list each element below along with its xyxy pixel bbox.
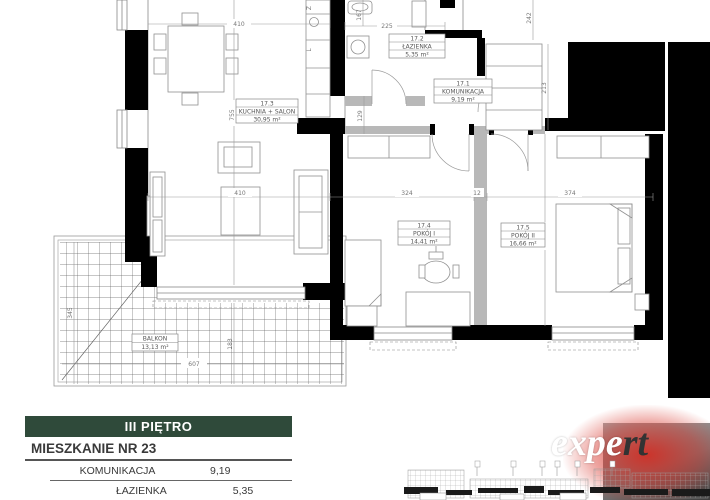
room2-wardrobe [557,136,649,158]
room-label-bathroom: 17.2 ŁAZIENKA 5,35 m² [389,34,445,59]
svg-text:POKÓJ I: POKÓJ I [413,231,435,238]
dim-room1-width: 324 [401,190,413,197]
room-label-corridor: 17.1 KOMUNIKACJA 9,19 m² [434,79,492,104]
kitchen-counter [306,0,330,117]
apartment-title: MIESZKANIE NR 23 [25,437,292,461]
svg-text:17.4: 17.4 [417,223,431,230]
dim-salon-width-mid: 410 [234,190,246,197]
legend-row: ŁAZIENKA 5,35 [50,480,292,500]
svg-text:POKÓJ II: POKÓJ II [511,233,535,240]
nightstand [635,294,649,310]
legend-row: KOMUNIKACJA 9,19 [25,461,292,480]
legend-row-value: 9,19 [210,465,270,477]
room-label-balcony: BALKON 13,13 m² [132,334,178,351]
dim-salon-width-top: 410 [233,21,245,28]
dim-entry-side: 242 [526,12,533,24]
dim-corridor: 129 [357,110,364,122]
svg-text:30,95 m²: 30,95 m² [253,117,281,124]
room-label-room2: 17.5 POKÓJ II 16,66 m² [501,223,545,248]
dim-salon-height: 755 [229,109,236,121]
svg-text:9,19 m²: 9,19 m² [451,97,475,104]
sink-letter: Z [306,6,313,10]
svg-text:13,13 m²: 13,13 m² [141,344,169,351]
dim-balcony-inner: 183 [227,338,234,350]
legend-table: III PIĘTRO MIESZKANIE NR 23 KOMUNIKACJA … [25,416,292,500]
expert-logo: expert [551,424,648,462]
svg-text:5,35 m²: 5,35 m² [405,52,429,59]
room-label-kitchen-salon: 17.3 KUCHNIA + SALON 30,95 m² [236,99,298,124]
desk [406,292,470,326]
svg-text:17.3: 17.3 [260,101,274,108]
svg-text:17.1: 17.1 [456,81,470,88]
office-chair [422,261,450,283]
room-label-room1: 17.4 POKÓJ I 14,41 m² [398,221,450,246]
dim-room2-width: 374 [564,190,576,197]
corridor-wardrobe [486,44,542,130]
dim-wardrobe: 213 [541,82,548,94]
floor-plan-page: 410 225 167 242 755 410 324 12 374 213 1… [0,0,710,500]
logo-text-dark: rt [623,422,648,464]
svg-text:14,41 m²: 14,41 m² [410,239,438,246]
svg-text:17.5: 17.5 [516,225,530,232]
svg-text:16,66 m²: 16,66 m² [509,241,537,248]
logo-text-white: expe [551,422,623,464]
dim-bath-side: 167 [356,9,363,21]
dim-balcony-width: 607 [188,361,200,368]
svg-text:17.2: 17.2 [410,36,424,43]
room1-side-wardrobe [345,240,381,306]
legend-row-value: 5,35 [233,485,292,497]
floor-header: III PIĘTRO [25,416,292,437]
svg-text:ŁAZIENKA: ŁAZIENKA [401,44,432,51]
dim-balcony-depth: 345 [67,307,74,319]
mini-overview-plan [404,461,710,500]
legend-row-label: ŁAZIENKA [50,485,233,497]
balcony-hatch [157,303,344,384]
legend-row-label: KOMUNIKACJA [25,465,210,477]
svg-text:KUCHNIA + SALON: KUCHNIA + SALON [239,109,295,116]
svg-text:KOMUNIKACJA: KOMUNIKACJA [442,89,485,96]
bath-cabinet [412,1,426,27]
dining-table [168,26,224,92]
dim-bath-width: 225 [381,23,393,30]
svg-text:BALKON: BALKON [143,336,167,343]
dim-partition: 12 [473,190,481,197]
